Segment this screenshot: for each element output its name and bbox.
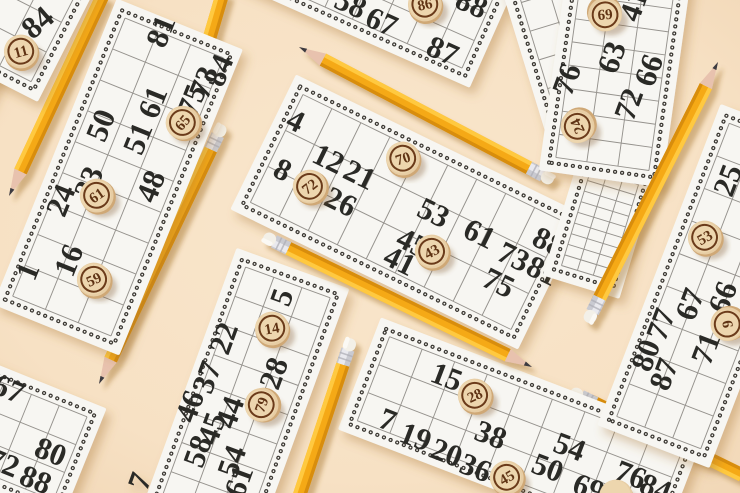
svg-text:69: 69 — [597, 5, 613, 22]
